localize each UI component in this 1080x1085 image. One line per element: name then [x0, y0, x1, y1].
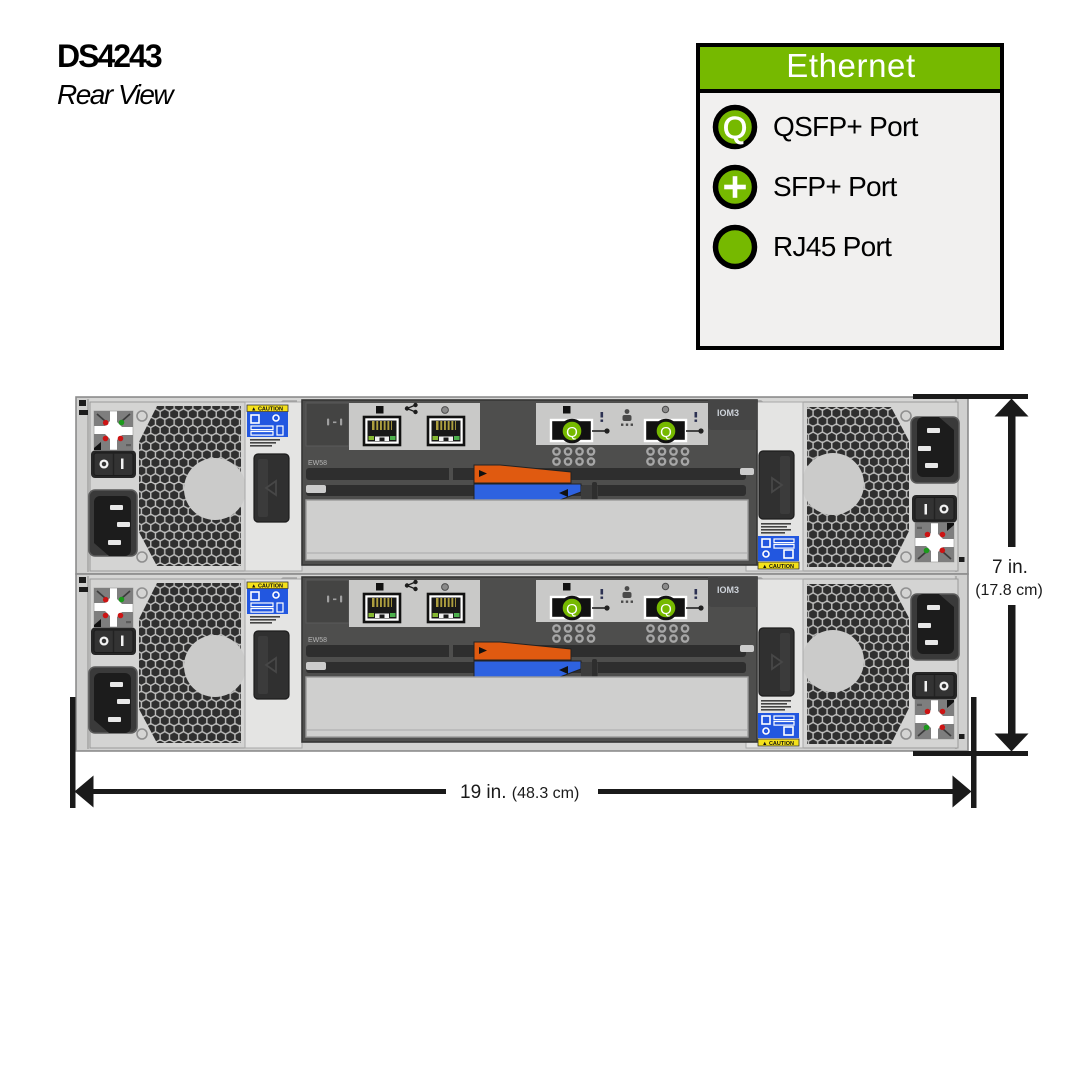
svg-text:7 in.: 7 in.: [992, 557, 1028, 578]
svg-text:RJ45 Port: RJ45 Port: [773, 231, 892, 262]
svg-text:DS4243: DS4243: [57, 38, 162, 74]
svg-text:Rear View: Rear View: [57, 79, 175, 110]
svg-text:19 in. (48.3 cm): 19 in. (48.3 cm): [460, 782, 579, 803]
svg-text:SFP+ Port: SFP+ Port: [773, 171, 898, 202]
svg-text:QSFP+ Port: QSFP+ Port: [773, 111, 919, 142]
svg-text:Ethernet: Ethernet: [786, 47, 916, 84]
svg-text:(17.8 cm): (17.8 cm): [975, 582, 1043, 599]
svg-text:Q: Q: [723, 110, 747, 145]
